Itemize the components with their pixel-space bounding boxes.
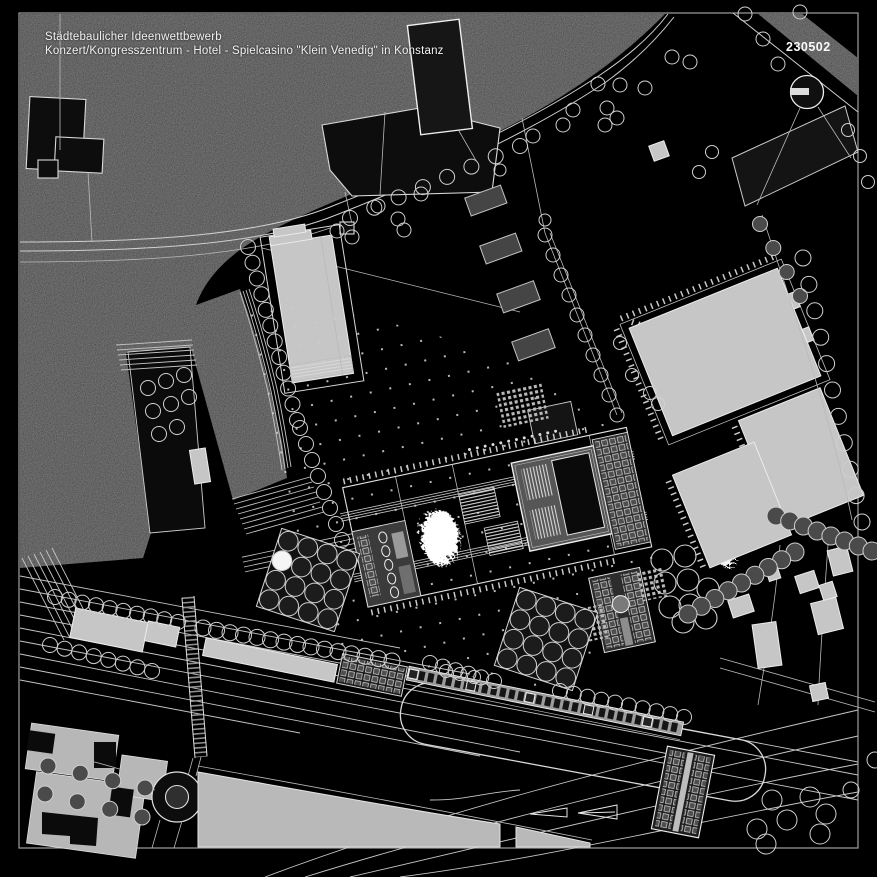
competition-title: Städtebaulicher Ideenwettbewerb [45, 30, 444, 44]
site-plan-drawing [0, 0, 877, 877]
site-plan-sheet: Städtebaulicher Ideenwettbewerb Konzert/… [0, 0, 877, 877]
title-block: Städtebaulicher Ideenwettbewerb Konzert/… [45, 30, 444, 58]
plan-number-stamp: 230502 [786, 40, 831, 54]
project-subtitle: Konzert/Kongresszentrum - Hotel - Spielc… [45, 44, 444, 58]
gas-tank-bar-icon [790, 88, 809, 95]
